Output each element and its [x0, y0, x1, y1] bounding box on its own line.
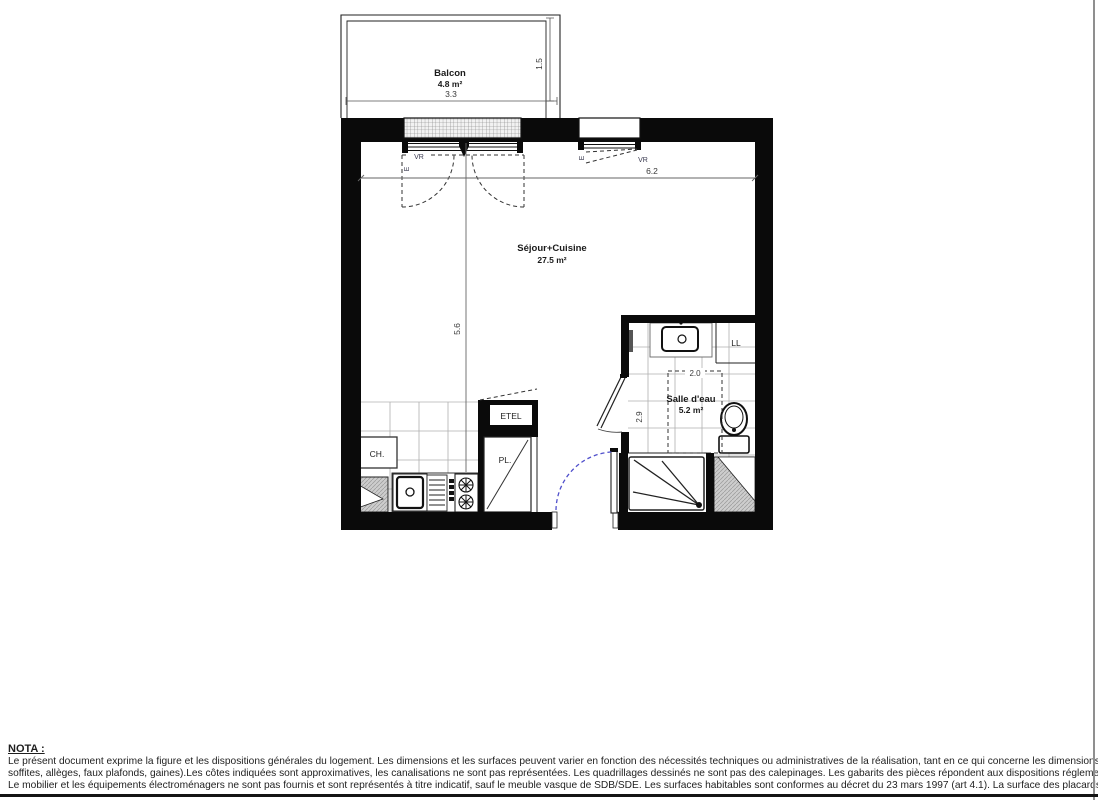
closet-box	[484, 437, 537, 512]
living-height-value: 5.6	[452, 323, 462, 335]
bathroom-door	[597, 374, 627, 432]
window-bay-swing	[402, 155, 524, 207]
nota-section: NOTA : Le présent document exprime la fi…	[8, 743, 1094, 792]
washing-machine-label: LL	[731, 338, 741, 348]
electrical-panel-label: ETEL	[500, 411, 522, 421]
window-bay	[402, 118, 523, 157]
nota-title: NOTA :	[8, 743, 1094, 755]
page-border-right	[1093, 0, 1095, 800]
living-kitchen-area: 27.5 m²	[537, 255, 566, 265]
shutter-left-label: VR	[414, 154, 424, 161]
hob-icon	[455, 474, 478, 512]
balcony-area: 4.8 m²	[438, 79, 463, 89]
air-inlet-left-label: E	[404, 166, 411, 171]
nota-line: Le présent document exprime la figure et…	[8, 756, 1094, 768]
toilet-icon	[719, 403, 749, 453]
living-width-value: 6.2	[646, 166, 658, 176]
entry-door-swing	[556, 452, 612, 510]
entry-door	[552, 448, 618, 528]
nota-line: Le mobilier et les équipements électromé…	[8, 780, 1094, 792]
balcony-label: Balcon	[434, 68, 466, 79]
boiler-label: CH.	[370, 449, 385, 459]
nota-line: soffites, allèges, faux plafonds, gaines…	[8, 768, 1094, 780]
bathroom-label: Salle d'eau	[666, 394, 715, 405]
living-kitchen-label: Séjour+Cuisine	[517, 243, 586, 254]
balcony-dimension-depth	[546, 18, 554, 101]
soffit-dashed-line	[480, 389, 537, 400]
window-secondary-swing	[586, 149, 637, 163]
bathroom-height-value: 2.9	[635, 411, 644, 423]
balcony-railing	[341, 15, 560, 118]
kitchen-sink-icon	[393, 474, 427, 511]
page-bottom-rule	[0, 794, 1098, 797]
bathroom-area: 5.2 m²	[679, 405, 704, 415]
duct-hatch-bathroom	[714, 457, 755, 512]
floor-plan-svg: Balcon 4.8 m² 3.3 1.5 LL	[0, 0, 1098, 745]
balcony-depth-value: 1.5	[534, 58, 544, 70]
vanity-sink	[650, 321, 712, 357]
balcony-width-value: 3.3	[445, 89, 457, 99]
dimension-line-width	[358, 175, 758, 181]
bathroom-width-value: 2.0	[689, 369, 701, 378]
shower-icon	[625, 453, 708, 514]
shutter-right-label: VR	[638, 157, 648, 164]
window-secondary	[578, 118, 641, 150]
closet-label: PL.	[499, 455, 512, 465]
drainer-icon	[427, 475, 447, 511]
air-inlet-right-label: E	[579, 155, 586, 160]
